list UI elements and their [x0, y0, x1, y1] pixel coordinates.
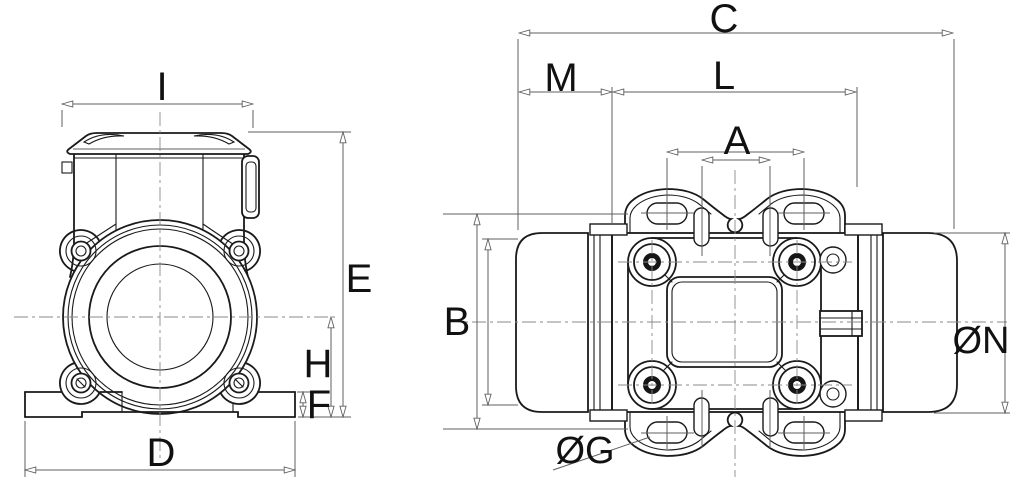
- dim-label-c: C: [710, 0, 739, 41]
- dim-label-g: ØG: [555, 430, 614, 472]
- box-side-nub: [62, 162, 72, 173]
- dim-label-n: ØN: [953, 320, 1010, 362]
- dim-label-a: A: [724, 119, 751, 163]
- front-view: I E H F D: [14, 65, 372, 477]
- dim-label-h: H: [304, 342, 333, 386]
- terminal-stub: [820, 311, 862, 336]
- right-end-cap: [883, 233, 957, 412]
- dim-label-e: E: [346, 257, 373, 301]
- top-view: C M L A B ØN ØG: [443, 0, 1010, 477]
- dim-label-d: D: [147, 431, 176, 475]
- dim-label-f: F: [307, 383, 331, 427]
- technical-drawing-page: I E H F D: [0, 0, 1012, 480]
- dim-label-m: M: [544, 56, 577, 100]
- dim-label-l: L: [713, 54, 735, 98]
- dim-label-i: I: [156, 65, 167, 109]
- terminal-box-lid: [67, 133, 251, 154]
- left-end-cap: [516, 233, 588, 412]
- vibration-motor-dimension-drawing: I E H F D: [0, 0, 1012, 480]
- dim-label-b: B: [444, 300, 471, 344]
